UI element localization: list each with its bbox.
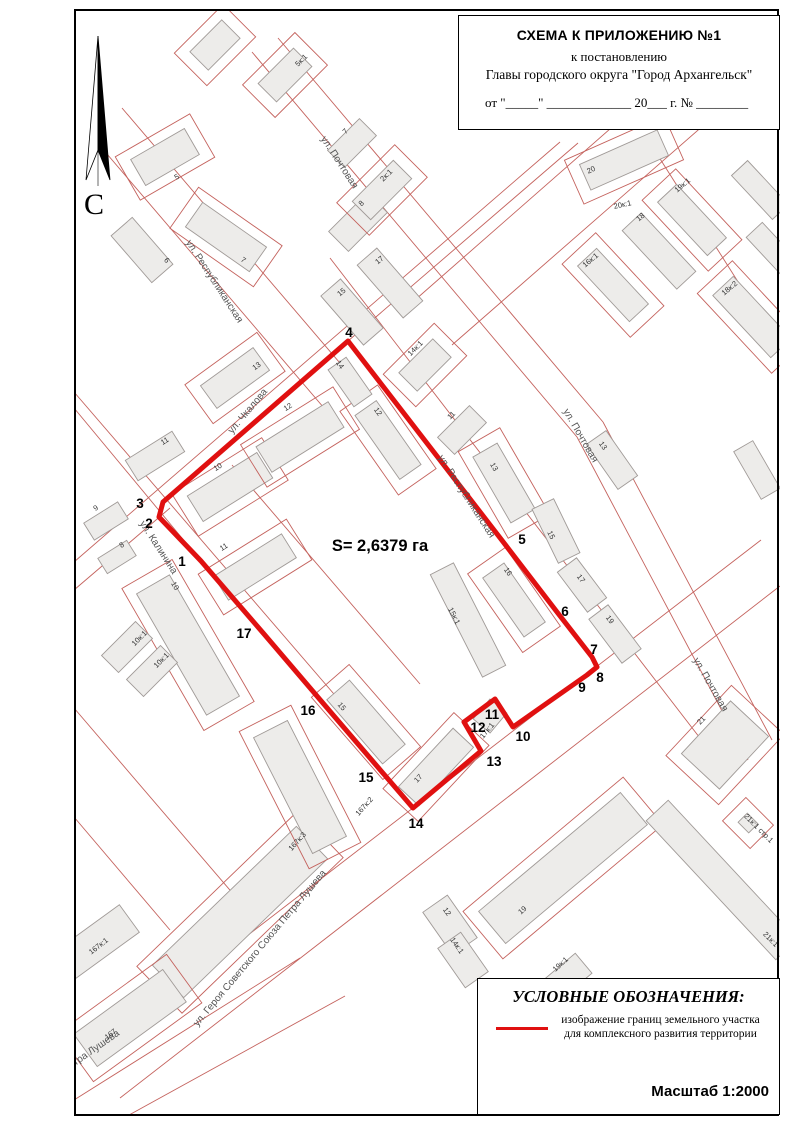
building-number: 167к:2 [353, 795, 374, 817]
vertex-number: 11 [485, 707, 500, 722]
building-number: 20к:1 [613, 198, 632, 211]
vertex-number: 17 [236, 626, 251, 641]
street-label: ул. Почтовая [560, 407, 600, 465]
area-label: S= 2,6379 га [332, 537, 429, 555]
scheme-page: ул. Чкаловаул. Республиканскаяул. Респуб… [0, 0, 800, 1131]
building-number: 9 [92, 503, 100, 513]
bottom-margin [0, 1116, 800, 1131]
legend-description: изображение границ земельного участка дл… [558, 1013, 763, 1041]
building-number: 21 [695, 714, 707, 726]
building-number: 11 [218, 541, 229, 553]
building [681, 701, 768, 789]
cadastral-line [74, 708, 235, 896]
building-number: 12 [282, 401, 294, 413]
building [483, 563, 546, 637]
legend-desc-line-2: для комплексного развития территории [558, 1027, 763, 1041]
vertex-number: 15 [358, 770, 374, 785]
vertex-number: 10 [515, 729, 530, 744]
title-line-2: к постановлению [459, 49, 779, 65]
north-label: С [84, 188, 104, 222]
building [131, 129, 200, 186]
right-margin [780, 0, 800, 1131]
vertex-number: 13 [486, 754, 502, 769]
vertex-number: 12 [470, 720, 485, 735]
legend-row: изображение границ земельного участка дл… [478, 1013, 779, 1041]
north-indicator: С [76, 28, 122, 243]
building [357, 248, 423, 318]
title-line-1: СХЕМА К ПРИЛОЖЕНИЮ №1 [459, 27, 779, 43]
title-date-line: от "_____" _____________ 20___ г. № ____… [459, 95, 779, 111]
top-margin [0, 0, 800, 9]
cadastral-line [74, 142, 560, 562]
legend-title: УСЛОВНЫЕ ОБОЗНАЧЕНИЯ: [478, 987, 779, 1007]
vertex-number: 14 [408, 816, 424, 831]
vertex-number: 5 [518, 532, 526, 547]
vertex-number: 6 [561, 604, 569, 619]
building [579, 130, 668, 190]
title-line-3: Главы городского округа "Город Архангель… [459, 67, 779, 83]
building [479, 792, 648, 943]
left-margin [0, 0, 74, 1131]
building [190, 20, 240, 70]
building [125, 431, 184, 480]
vertex-number: 16 [300, 703, 316, 718]
building [532, 499, 580, 563]
legend-box: УСЛОВНЫЕ ОБОЗНАЧЕНИЯ: изображение границ… [477, 978, 780, 1115]
building [98, 540, 136, 573]
vertex-number: 2 [145, 516, 153, 531]
building [355, 401, 421, 480]
vertex-number: 4 [345, 325, 353, 340]
legend-desc-line-1: изображение границ земельного участка [558, 1013, 763, 1027]
vertex-number: 3 [136, 496, 144, 511]
vertex-number: 1 [178, 554, 186, 569]
building [137, 575, 240, 715]
vertex-number: 7 [590, 642, 598, 657]
boundary-line-sample [496, 1027, 548, 1030]
building [438, 406, 487, 455]
building [734, 441, 781, 500]
title-block: СХЕМА К ПРИЛОЖЕНИЮ №1 к постановлению Гл… [458, 15, 780, 130]
building [187, 453, 272, 522]
scale-label: Масштаб 1:2000 [651, 1083, 769, 1100]
vertex-number: 9 [578, 680, 586, 695]
vertex-number: 8 [596, 670, 604, 685]
building [399, 339, 451, 391]
street-label: ул. Почтовая [690, 656, 730, 714]
